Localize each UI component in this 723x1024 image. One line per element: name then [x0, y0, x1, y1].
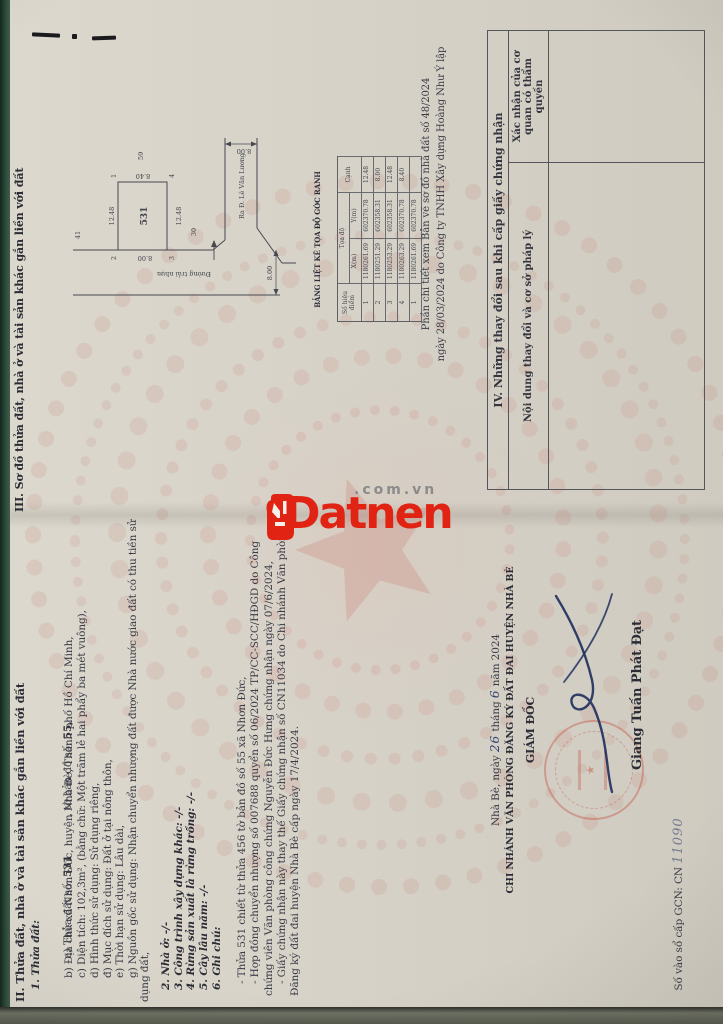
diagram-dim-left: 8.00	[138, 254, 152, 262]
note-line-3: - Giấy chứng nhận này thay thế Giấy chứn…	[276, 528, 288, 984]
issue-date-line: Nhà Bè, ngày 26 tháng 6 năm 2024	[489, 560, 503, 900]
date-prefix: Nhà Bè, ngày	[490, 755, 502, 826]
coord-table-title: BẢNG LIỆT KÊ TỌA ĐỘ GÓC RANH	[314, 157, 322, 322]
section4-col2-body	[549, 31, 704, 162]
coord-row-pt: 4	[398, 283, 410, 321]
section2-sub1: 1. Thửa đất:	[30, 920, 42, 990]
item-notes: 6. Ghi chú:	[211, 927, 223, 990]
coord-row-edge: 8.00	[374, 156, 386, 192]
use-purpose-line: đ) Mục đích sử dụng: Đất ở tại nông thôn…	[102, 759, 114, 978]
section3-heading: III. Sơ đồ thửa đất, nhà ở và tài sản kh…	[14, 168, 27, 512]
coord-row-x: 1180263.29	[398, 238, 410, 283]
diagram-road-left-label: Đường trải nhựa	[157, 270, 211, 279]
site-watermark: Datnen .com.vn	[262, 478, 477, 550]
use-term-line: e) Thời hạn sử dụng: Lâu dài,	[114, 825, 126, 978]
photo-of-land-certificate: II. Thửa đất, nhà ở và tài sản khác gắn …	[0, 0, 723, 1024]
date-thang: tháng	[490, 701, 502, 731]
item-perennial: 5. Cây lâu năm: -/-	[198, 885, 210, 990]
use-origin-line-cont: dụng đất,	[139, 952, 151, 1002]
coord-row-pt: 1	[362, 283, 374, 321]
item-structures: 3. Công trình xây dựng khác: -/-	[173, 807, 185, 990]
sketch-reference-line1: Phần chi tiết xem Bản vẽ sơ đồ nhà đất s…	[421, 4, 433, 404]
diagram-dim-right: 8.40	[136, 172, 150, 180]
coord-col-coords-header: Tọa độ	[338, 192, 350, 283]
coord-row-x: 1180261.69	[362, 238, 374, 283]
pen-mark-1	[32, 32, 60, 37]
coord-row-y: 602358.31	[386, 192, 398, 238]
issuing-office: CHI NHÁNH VĂN PHÒNG ĐĂNG KÝ ĐẤT ĐAI HUYỆ…	[506, 530, 517, 930]
sketch-reference-line2: ngày 28/03/2024 do Công ty TNHH Xây dựng…	[436, 4, 448, 404]
diagram-corner-3: 3	[168, 256, 176, 260]
coord-row-x: 1180253.29	[386, 238, 398, 283]
coord-col-edge-header: Cạnh	[338, 156, 362, 192]
coord-col-y-header: Y(m)	[350, 192, 362, 238]
diagram-neighbor-top: 41	[74, 231, 82, 239]
gcn-label: Số vào sổ cấp GCN: CN	[673, 864, 685, 991]
coord-col-point-header: Số hiệu điểm	[338, 283, 362, 321]
signer-name: Giang Tuấn Phát Đạt	[631, 580, 646, 810]
note-line-3b: Đăng ký đất đai huyện Nhà Bè cấp ngày 17…	[289, 726, 301, 996]
section2-heading: II. Thửa đất, nhà ở và tài sản khác gắn …	[14, 683, 27, 1002]
signer-title: GIÁM ĐỐC	[525, 530, 538, 930]
coord-row-y: 602358.31	[374, 192, 386, 238]
diagram-road-right-label: Ra Đ. Lê Văn Lương	[238, 153, 246, 219]
item-house: 2. Nhà ở: -/-	[160, 922, 172, 990]
coord-row-edge: 12.48	[362, 156, 374, 192]
pen-mark-dot	[72, 34, 77, 39]
director-signature	[548, 590, 620, 800]
pen-mark-2	[92, 36, 116, 41]
use-form-line: d) Hình thức sử dụng: Sử dụng riêng,	[89, 783, 101, 978]
diagram-neighbor-right: 59	[137, 152, 145, 160]
address-line: b) Địa chỉ: xã Nhơn Đức, huyện Nhà Bè, T…	[63, 637, 75, 979]
coord-row-y: 602370.78	[362, 192, 374, 238]
date-year: năm 2024	[490, 634, 502, 686]
diagram-dim-bottom: 12.48	[175, 207, 183, 226]
coord-row-pt: 2	[374, 283, 386, 321]
watermark-suffix: .com.vn	[354, 482, 437, 498]
coord-table: Số hiệu điểm Tọa độ Cạnh X(m) Y(m) 1 118…	[337, 156, 422, 322]
diagram-corner-2: 2	[110, 256, 118, 260]
section4-col1-body	[549, 162, 704, 489]
item-forest: 4. Rừng sản xuất là rừng trồng: -/-	[185, 792, 197, 990]
section4-col1-header: Nội dung thay đổi và cơ sở pháp lý	[509, 162, 549, 489]
note-line-2b: chứng viên Văn phòng công chứng Nguyễn Đ…	[263, 561, 275, 996]
coord-row-edge: 8.40	[398, 156, 410, 192]
table-surface-edge	[0, 1007, 723, 1024]
note-line-2: - Hợp đồng chuyển nhượng số 007688 quyển…	[249, 541, 261, 984]
coord-row-y: 602370.78	[398, 192, 410, 238]
gcn-registry-number: Số vào sổ cấp GCN: CN 11090	[660, 817, 699, 1010]
section4-col2-header: Xác nhận của cơ quan có thẩm quyền	[509, 31, 549, 162]
diagram-corner-4: 4	[168, 174, 176, 178]
plot-diagram: 2 1 4 3 12.48 12.48 8.40 8.00 531 41 59 …	[48, 94, 313, 364]
section4-table: IV. Những thay đổi sau khi cấp giấy chứn…	[487, 30, 705, 490]
diagram-plot-number: 531	[140, 207, 150, 226]
coord-row-edge: 12.48	[386, 156, 398, 192]
diagram-corner-1: 1	[110, 174, 118, 178]
diagram-dim-top: 12.48	[108, 207, 116, 226]
note-line-1: - Thửa 531 chiết từ thửa 456 tờ bản đồ s…	[236, 677, 248, 984]
book-spine-edge	[0, 0, 10, 1024]
section4-heading: IV. Những thay đổi sau khi cấp giấy chứn…	[488, 31, 509, 489]
date-month-handwritten: 6	[488, 689, 502, 698]
gcn-number-handwritten: 11090	[671, 817, 686, 863]
coord-row-pt: 3	[386, 283, 398, 321]
diagram-road-width-2: 8.00	[266, 266, 274, 280]
coord-col-x-header: X(m)	[350, 238, 362, 283]
diagram-road-width-1: 8.00	[237, 147, 251, 155]
area-line: c) Diện tích: 102,3m², (bằng chữ: Một tr…	[76, 610, 88, 978]
coord-row-x: 1180251.29	[374, 238, 386, 283]
date-day-handwritten: 26	[488, 735, 502, 752]
diagram-neighbor-bottom: 30	[190, 228, 198, 236]
use-origin-line: g) Nguồn gốc sử dụng: Nhận chuyển nhượng…	[127, 520, 139, 978]
